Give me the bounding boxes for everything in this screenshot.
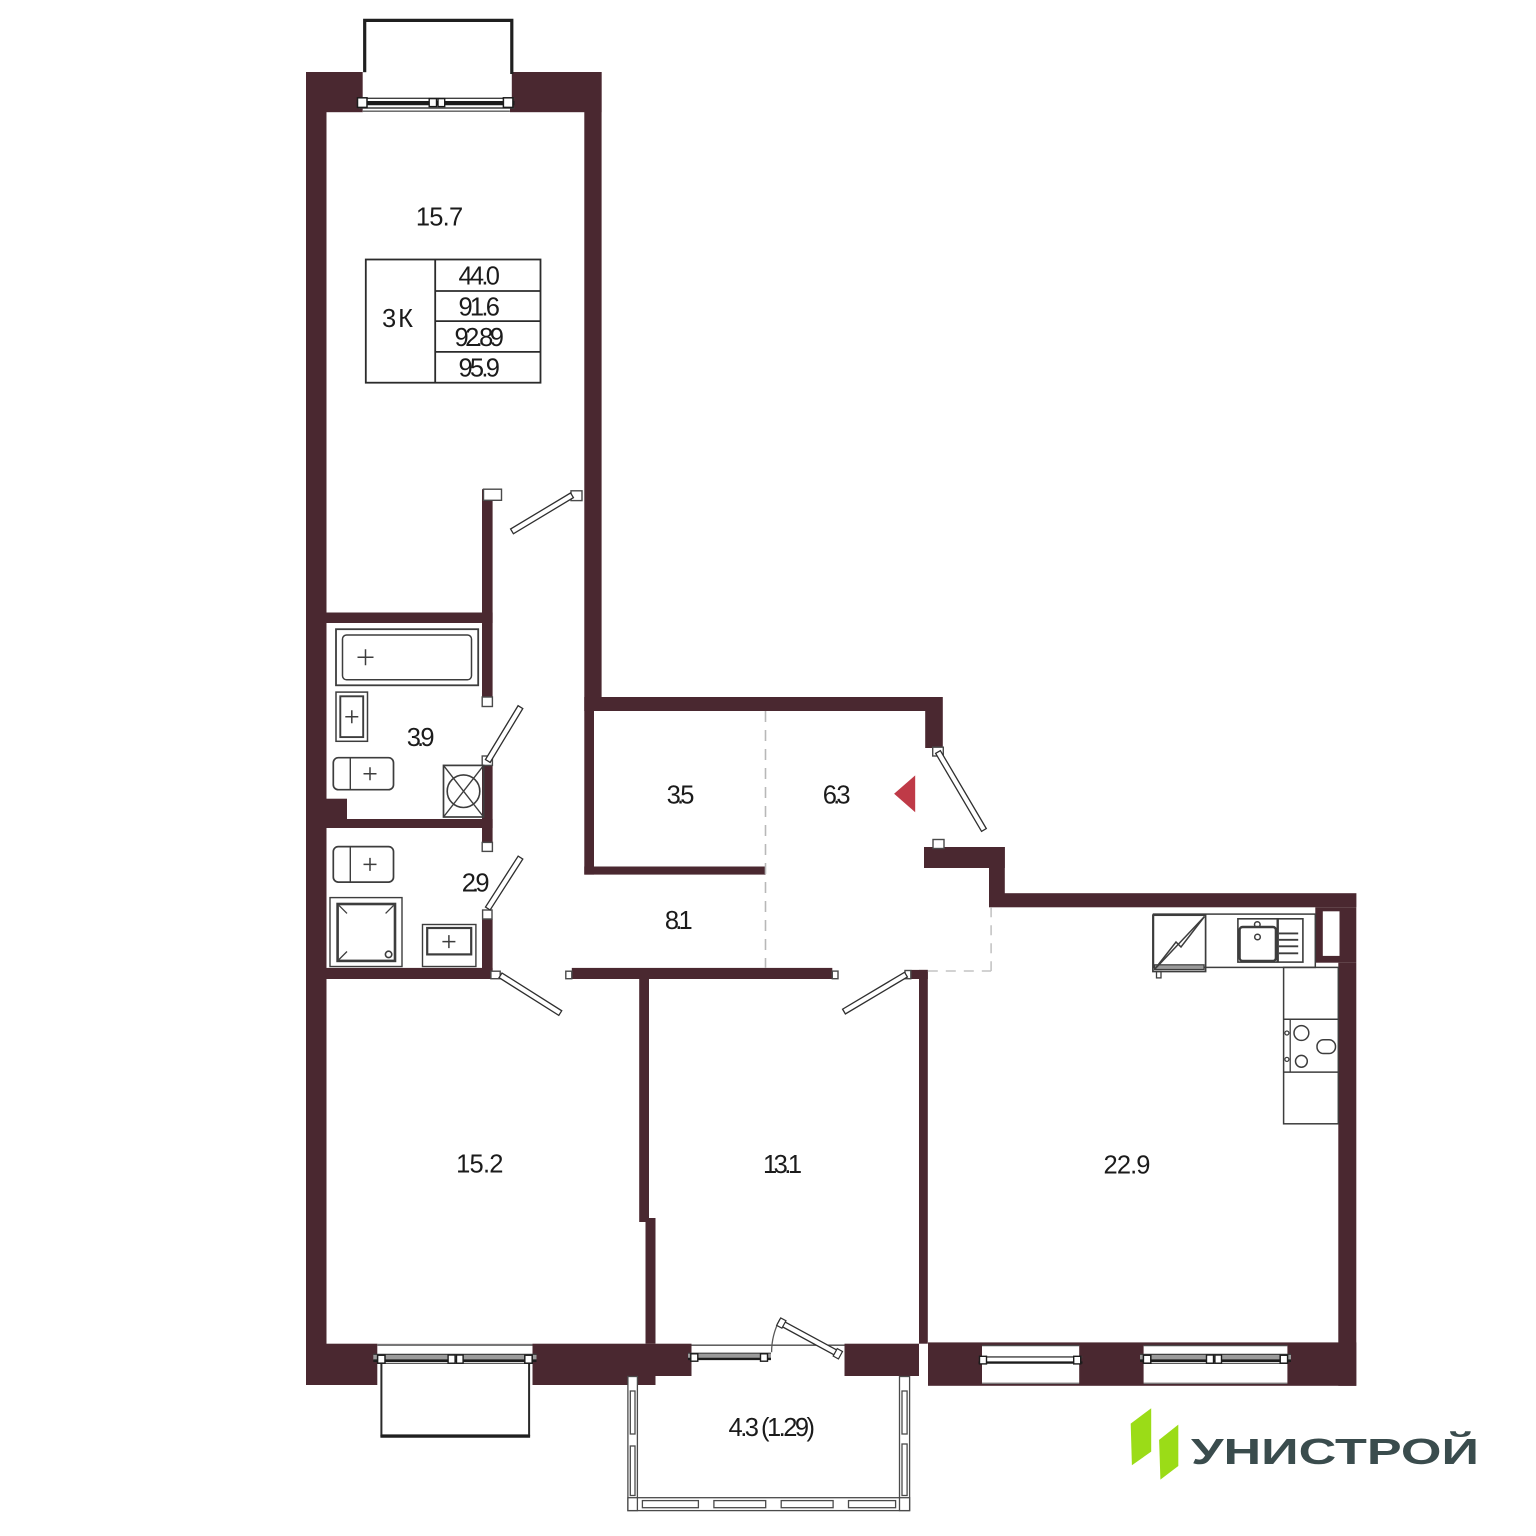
svg-text:22.9: 22.9 xyxy=(1104,1151,1151,1179)
svg-text:2.9: 2.9 xyxy=(462,870,490,898)
svg-text:13.1: 13.1 xyxy=(763,1151,802,1179)
svg-text:91.6: 91.6 xyxy=(458,293,500,321)
svg-text:44.0: 44.0 xyxy=(458,263,500,291)
svg-text:15.2: 15.2 xyxy=(456,1150,503,1178)
svg-text:3 К: 3 К xyxy=(382,305,413,333)
svg-text:15.7: 15.7 xyxy=(416,204,463,232)
svg-text:95.9: 95.9 xyxy=(458,355,500,383)
svg-text:4.3 (1.29): 4.3 (1.29) xyxy=(729,1414,816,1442)
svg-text:3.9: 3.9 xyxy=(407,724,435,752)
svg-text:УНИСТРОЙ: УНИСТРОЙ xyxy=(1191,1430,1479,1472)
svg-text:8.1: 8.1 xyxy=(665,907,693,935)
svg-text:3.5: 3.5 xyxy=(667,782,695,810)
svg-text:6.3: 6.3 xyxy=(823,782,851,810)
svg-text:92.89: 92.89 xyxy=(455,324,504,352)
